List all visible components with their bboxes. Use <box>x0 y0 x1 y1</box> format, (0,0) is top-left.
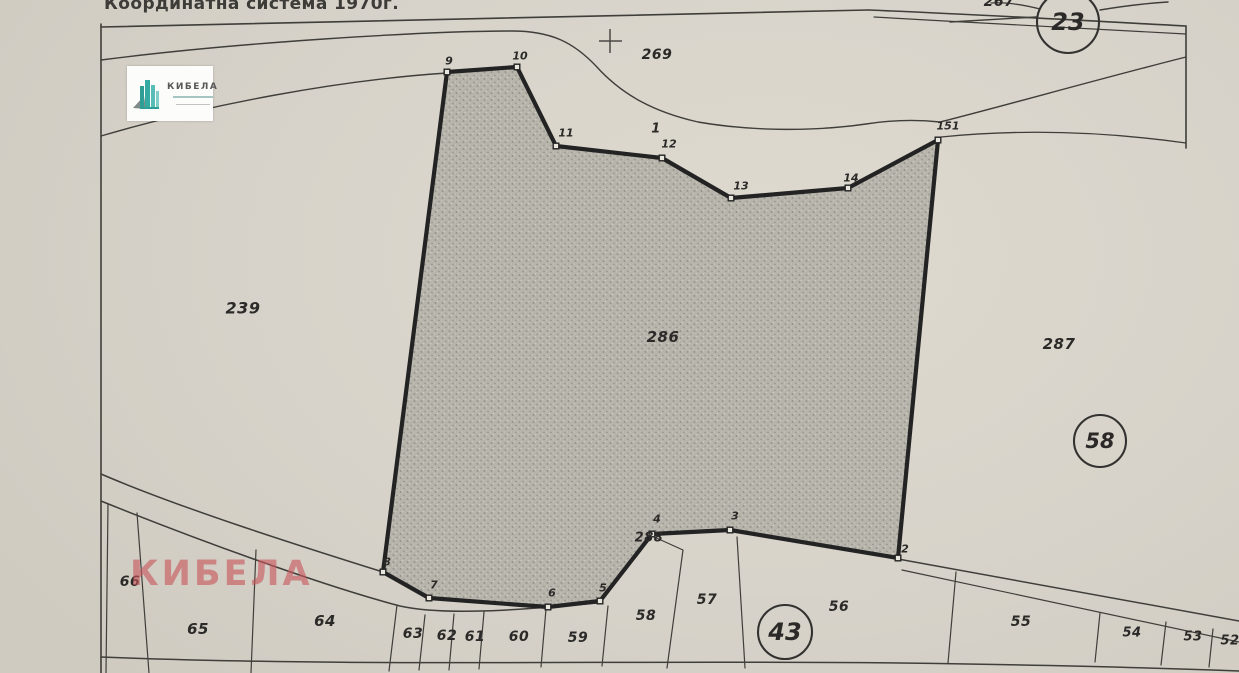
survey-vertex-marker <box>545 604 551 610</box>
circled-parcel-label-23: 23 <box>1051 8 1084 36</box>
boundary-line-divider-58-57 <box>652 536 683 668</box>
kibela-watermark: КИБЕЛА <box>130 554 313 594</box>
boundary-line-divider-60-59 <box>541 609 546 667</box>
parcel-label-63: 63 <box>403 626 423 642</box>
circled-parcel-label-58: 58 <box>1085 429 1114 453</box>
parcel-label-61: 61 <box>465 629 485 645</box>
vertex-label-14: 14 <box>843 172 858 185</box>
parcel-label-269: 269 <box>642 47 673 63</box>
vertex-label-7: 7 <box>430 579 438 592</box>
logo-subtext-line <box>173 96 213 98</box>
circled-parcel-label-43: 43 <box>767 618 801 646</box>
parcel-label-64: 64 <box>314 612 336 630</box>
vertex-label-3: 3 <box>731 510 739 523</box>
vertex-label-9: 9 <box>445 55 453 68</box>
parcel-label-52: 52 <box>1220 634 1239 649</box>
vertex-label-10: 10 <box>512 50 528 63</box>
survey-vertex-marker <box>727 527 733 533</box>
survey-vertex-marker <box>514 64 520 70</box>
boundary-line-divider-64-63 <box>389 605 397 671</box>
grid-cross-icon <box>599 29 622 53</box>
boundary-line-divider-63-62 <box>419 615 425 670</box>
coordinate-system-title: Координатна система 1970г. <box>104 0 399 14</box>
boundary-line-divider-66-left <box>106 504 108 673</box>
survey-vertex-marker <box>553 143 559 149</box>
survey-vertex-marker <box>380 569 386 575</box>
vertex-label-5: 5 <box>599 582 607 595</box>
survey-vertex-marker <box>935 137 941 143</box>
boundary-line-divider-59-58 <box>602 606 608 666</box>
survey-vertex-marker <box>444 69 450 75</box>
boundary-line-divider-54-53 <box>1161 622 1166 665</box>
vertex-label-12: 12 <box>661 138 677 151</box>
boundary-line-divider-53-52 <box>1209 629 1213 667</box>
parcel-label-54: 54 <box>1122 626 1141 641</box>
vertex-label-151: 151 <box>937 120 960 133</box>
survey-vertex-marker <box>728 195 734 201</box>
boundary-line-road-northeast-edge <box>940 57 1186 122</box>
parcel-label-58: 58 <box>636 608 656 624</box>
parcel-label-60: 60 <box>509 629 529 645</box>
logo-subtext-line-2 <box>176 104 210 106</box>
parcel-label-287: 287 <box>1043 335 1076 353</box>
vertex-label-11: 11 <box>558 127 573 140</box>
cadastral-map-scan: 2358432392862872691288267666564636261605… <box>0 0 1239 673</box>
parcel-label-57: 57 <box>697 592 717 608</box>
parcel-label-286: 286 <box>647 328 680 346</box>
survey-vertex-marker <box>659 155 665 161</box>
logo-text: КИБЕЛА <box>167 82 218 92</box>
parcel-label-65: 65 <box>187 620 209 638</box>
vertex-label-6: 6 <box>548 587 556 600</box>
kibela-logo: КИБЕЛА <box>127 66 213 121</box>
vertex-label-4: 4 <box>652 513 661 526</box>
survey-vertex-marker <box>426 595 432 601</box>
survey-vertex-marker <box>895 555 901 561</box>
boundary-line-circle23-line-left <box>950 17 1036 22</box>
boundary-line-circle23-line-right <box>1100 2 1168 10</box>
parcel-label-288: 288 <box>635 531 664 546</box>
parcel-label-267: 267 <box>984 0 1015 10</box>
vertex-label-8: 8 <box>383 556 391 569</box>
boundary-line-divider-56-55 <box>948 572 956 663</box>
parcel-label-59: 59 <box>568 630 588 646</box>
parcel-label-53: 53 <box>1183 630 1202 645</box>
survey-vertex-marker <box>597 598 603 604</box>
vertex-label-2: 2 <box>901 543 909 556</box>
parcel-label-1: 1 <box>651 122 661 137</box>
boundary-line-strip-bottom-line <box>101 657 1239 671</box>
boundary-line-divider-57-56 <box>737 537 745 668</box>
survey-vertex-marker <box>845 185 851 191</box>
parcel-label-55: 55 <box>1011 614 1031 630</box>
parcel-label-239: 239 <box>226 299 261 318</box>
boundary-line-parcel287-north-edge <box>941 132 1186 143</box>
boundary-line-divider-55-54 <box>1095 613 1100 662</box>
building-icon <box>132 72 162 116</box>
boundary-line-frame-top-right-2 <box>874 17 1186 34</box>
parcel-label-62: 62 <box>437 628 457 644</box>
parcel-label-56: 56 <box>829 599 849 615</box>
boundary-line-road-bottomright-1 <box>898 559 1239 621</box>
vertex-label-13: 13 <box>733 180 749 193</box>
